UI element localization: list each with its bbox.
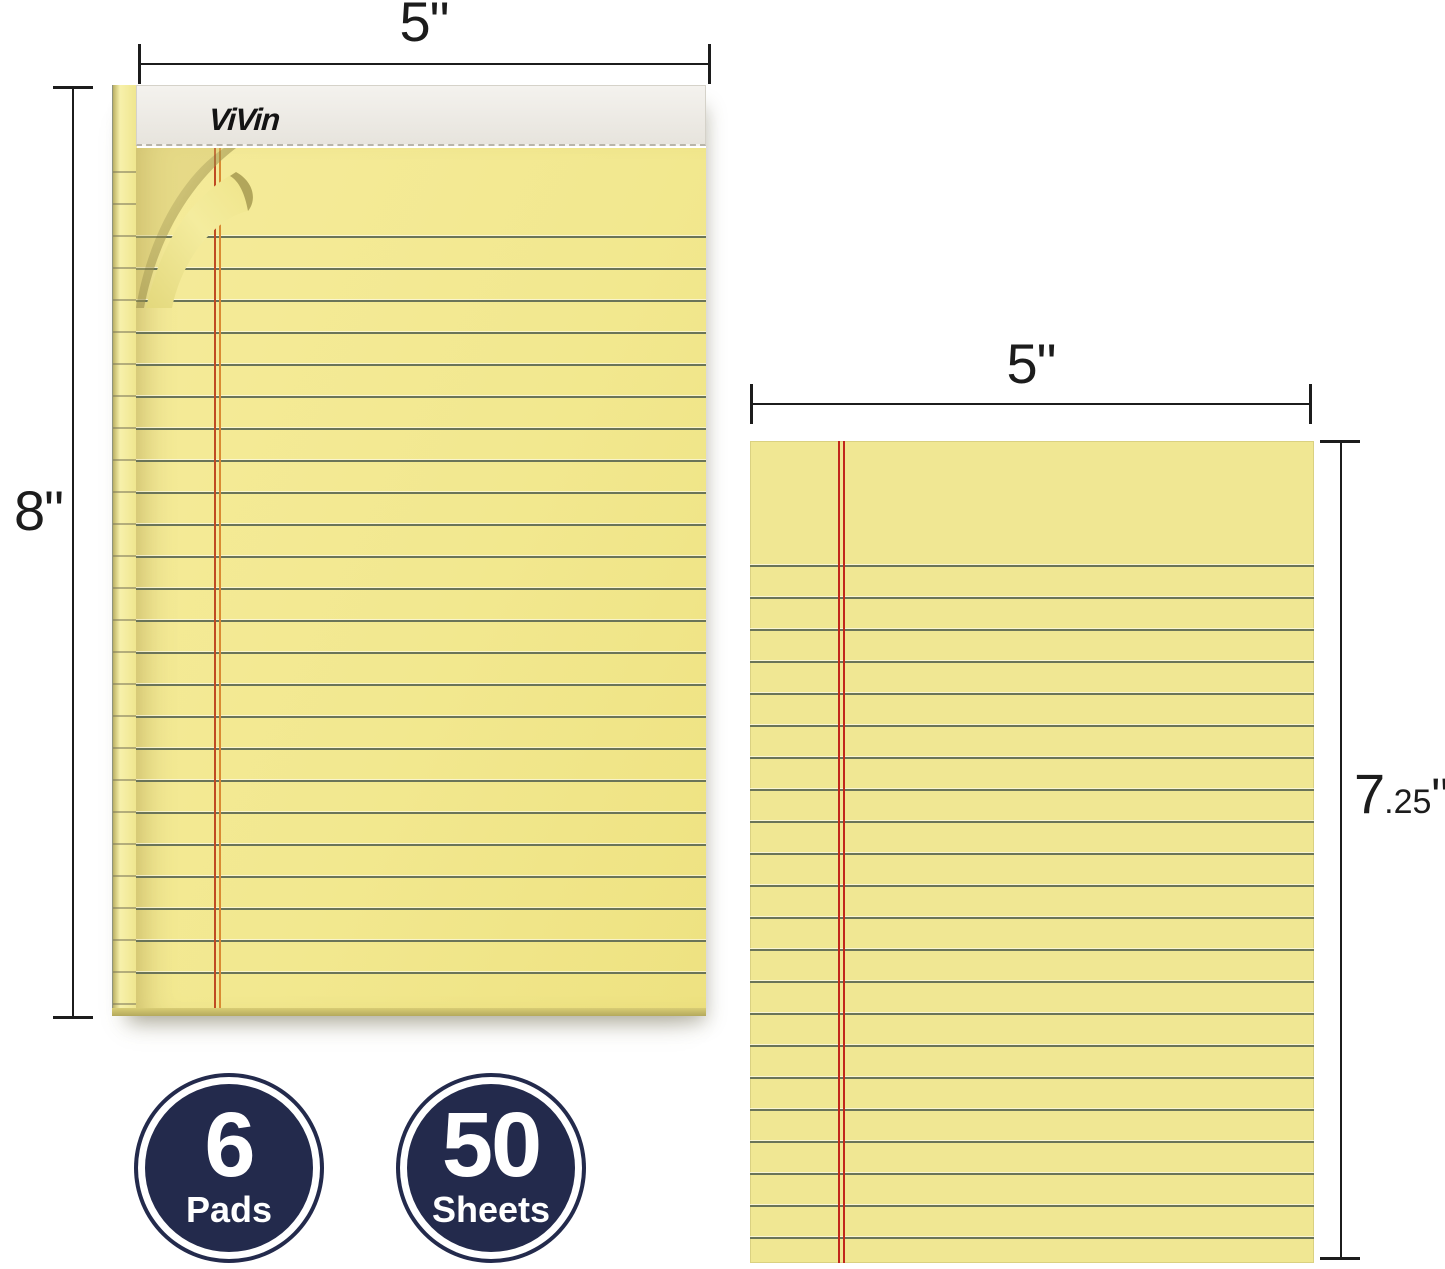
- sheet-ruled-lines: [750, 535, 1314, 1259]
- pad-width-label: 5": [399, 0, 448, 50]
- pad-bottom-edge: [112, 1008, 706, 1016]
- sheet-margin-line: [843, 441, 845, 1263]
- sheet-width-label: 5": [1006, 336, 1055, 392]
- single-sheet: [750, 441, 1314, 1263]
- badge-pads: 6 Pads: [145, 1084, 313, 1252]
- sheet-height-main: 7: [1354, 766, 1384, 822]
- page-curl-icon: [136, 148, 272, 316]
- badge-sheets: 50 Sheets: [407, 1084, 575, 1252]
- dimension-tick: [1309, 384, 1312, 424]
- pad-ruled-lines: [136, 206, 706, 1000]
- sheet-margin-line: [838, 441, 840, 1263]
- dimension-tick: [53, 86, 93, 89]
- dimension-tick: [138, 44, 141, 84]
- pad-header-strip: ViVin: [136, 85, 706, 146]
- dimension-line: [1340, 441, 1342, 1259]
- brand-logo: ViVin: [208, 102, 281, 138]
- sheet-height-unit: ": [1431, 771, 1445, 821]
- dimension-tick: [750, 384, 753, 424]
- dimension-tick: [1320, 440, 1360, 443]
- badge-label: Sheets: [432, 1192, 550, 1228]
- sheet-height-label: 7.25": [1354, 766, 1445, 822]
- pad-spine: [112, 85, 137, 1016]
- dimension-line: [72, 87, 74, 1018]
- legal-pad: ViVin: [112, 85, 706, 1016]
- dimension-tick: [1320, 1257, 1360, 1260]
- pad-spine-rules: [113, 141, 137, 1006]
- sheet-height-decimal: .25: [1384, 785, 1431, 819]
- badge-value: 6: [204, 1108, 253, 1183]
- dimension-tick: [53, 1016, 93, 1019]
- dimension-tick: [708, 44, 711, 84]
- badge-value: 50: [442, 1108, 540, 1183]
- badge-label: Pads: [186, 1192, 272, 1228]
- dimension-line: [139, 63, 710, 65]
- pad-height-label: 8": [14, 483, 63, 539]
- pad-body: [136, 148, 706, 1008]
- dimension-line: [751, 403, 1311, 405]
- product-image: 5" 8": [0, 0, 1445, 1269]
